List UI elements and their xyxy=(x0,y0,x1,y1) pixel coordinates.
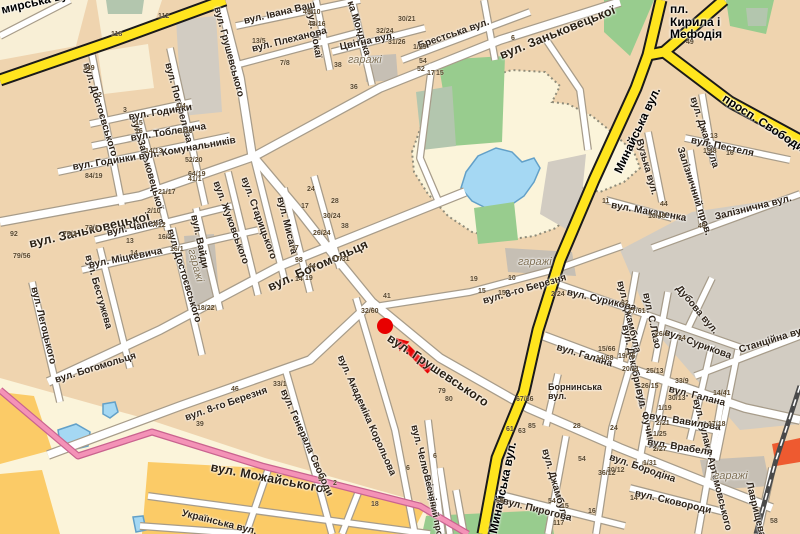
map-area xyxy=(106,0,144,14)
map-area xyxy=(98,44,154,94)
map-area xyxy=(474,202,518,244)
map-viewport[interactable]: мирська вул.Минайська вул.Минайська вул.… xyxy=(0,0,800,534)
map-canvas[interactable] xyxy=(0,0,800,534)
map-marker-dot[interactable] xyxy=(377,318,393,334)
map-area xyxy=(746,8,768,26)
